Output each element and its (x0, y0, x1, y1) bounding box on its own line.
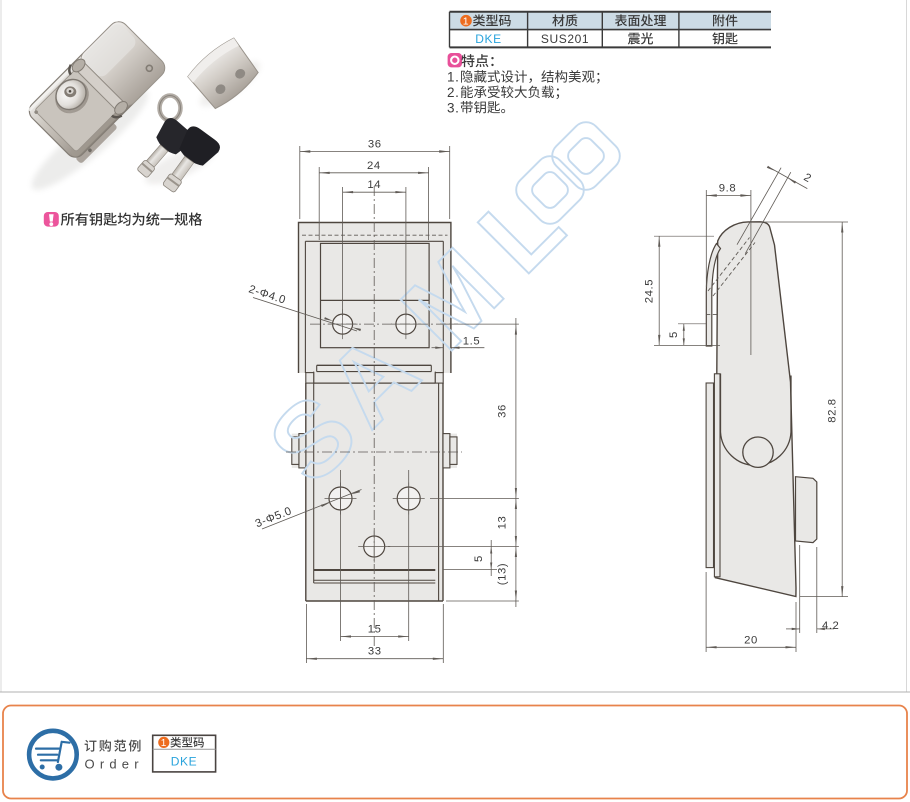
svg-text:4.2: 4.2 (822, 620, 840, 632)
svg-text:SUS201: SUS201 (541, 32, 589, 46)
svg-text:(13): (13) (497, 563, 509, 586)
svg-text:2.: 2. (447, 85, 459, 100)
svg-text:2-Φ4.0: 2-Φ4.0 (247, 283, 287, 306)
svg-text:1.5: 1.5 (463, 335, 481, 347)
svg-text:24: 24 (367, 160, 381, 172)
svg-text:1.: 1. (447, 70, 459, 85)
svg-text:5: 5 (473, 555, 485, 562)
svg-text:36: 36 (497, 404, 509, 418)
svg-text:O r d e r: O r d e r (85, 757, 140, 772)
svg-text:15: 15 (368, 624, 382, 636)
svg-text:9.8: 9.8 (719, 183, 737, 195)
svg-text:36: 36 (368, 139, 382, 151)
svg-text:DKE: DKE (475, 32, 501, 46)
svg-text:13: 13 (497, 516, 509, 530)
svg-text:33: 33 (368, 646, 382, 658)
svg-text:DKE: DKE (171, 754, 197, 768)
svg-text:20: 20 (744, 634, 758, 646)
svg-text:82.8: 82.8 (827, 398, 839, 422)
svg-text:3-Φ5.0: 3-Φ5.0 (254, 505, 294, 530)
svg-text:24.5: 24.5 (644, 279, 656, 303)
svg-text:5: 5 (668, 331, 680, 338)
svg-text:3.: 3. (447, 100, 459, 115)
svg-text:14: 14 (367, 179, 381, 191)
svg-text:2: 2 (802, 171, 814, 185)
svg-text:1: 1 (463, 16, 469, 28)
svg-text:1: 1 (161, 738, 167, 749)
